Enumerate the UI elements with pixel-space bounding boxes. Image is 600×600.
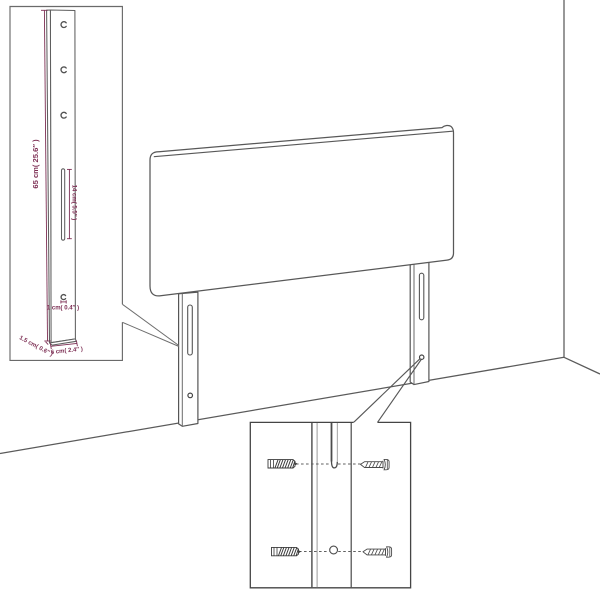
svg-text:14 cm( 5.5″ ): 14 cm( 5.5″ ) [70, 185, 76, 221]
svg-text:65 cm( 25.6″ ): 65 cm( 25.6″ ) [31, 139, 40, 189]
svg-text:1 cm( 0.4″ ): 1 cm( 0.4″ ) [47, 306, 79, 312]
